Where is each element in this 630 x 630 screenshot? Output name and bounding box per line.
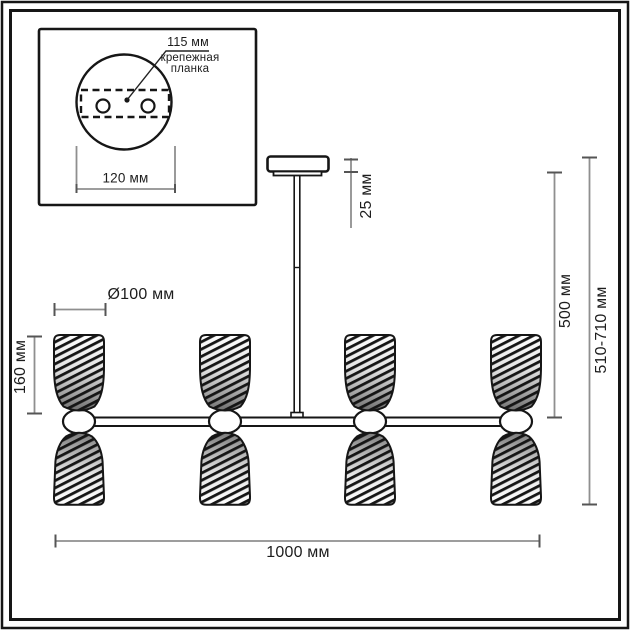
label-mounting-plate: крепежная планка: [161, 53, 220, 75]
inset-dimension-120: [77, 146, 176, 193]
label-hole-spacing: 115 мм: [167, 35, 209, 49]
label-overall-width: 1000 мм: [266, 544, 329, 562]
canopy-lip: [274, 172, 322, 176]
label-canopy-diameter: 120 мм: [102, 171, 148, 186]
dim-canopy-height: [344, 158, 358, 228]
label-mounting-plate-line2: планка: [161, 64, 220, 75]
technical-drawing-page: 115 мм крепежная планка 120 мм 25 мм Ø10…: [0, 0, 630, 630]
label-canopy-height: 25 мм: [358, 173, 376, 218]
dim-shade-diameter: [54, 303, 106, 316]
mounting-plate: [81, 90, 169, 117]
label-shade-diameter: Ø100 мм: [108, 286, 175, 304]
horizontal-bar: [72, 418, 522, 427]
label-shade-height: 160 мм: [12, 340, 30, 394]
chandelier-side-view: [54, 157, 541, 505]
label-stem-length: 500 мм: [557, 274, 575, 328]
label-overall-height: 510-710 мм: [593, 286, 611, 373]
chandelier-dimension-drawing: [0, 0, 630, 630]
stem-rod: [294, 174, 300, 414]
ceiling-canopy: [268, 157, 329, 172]
